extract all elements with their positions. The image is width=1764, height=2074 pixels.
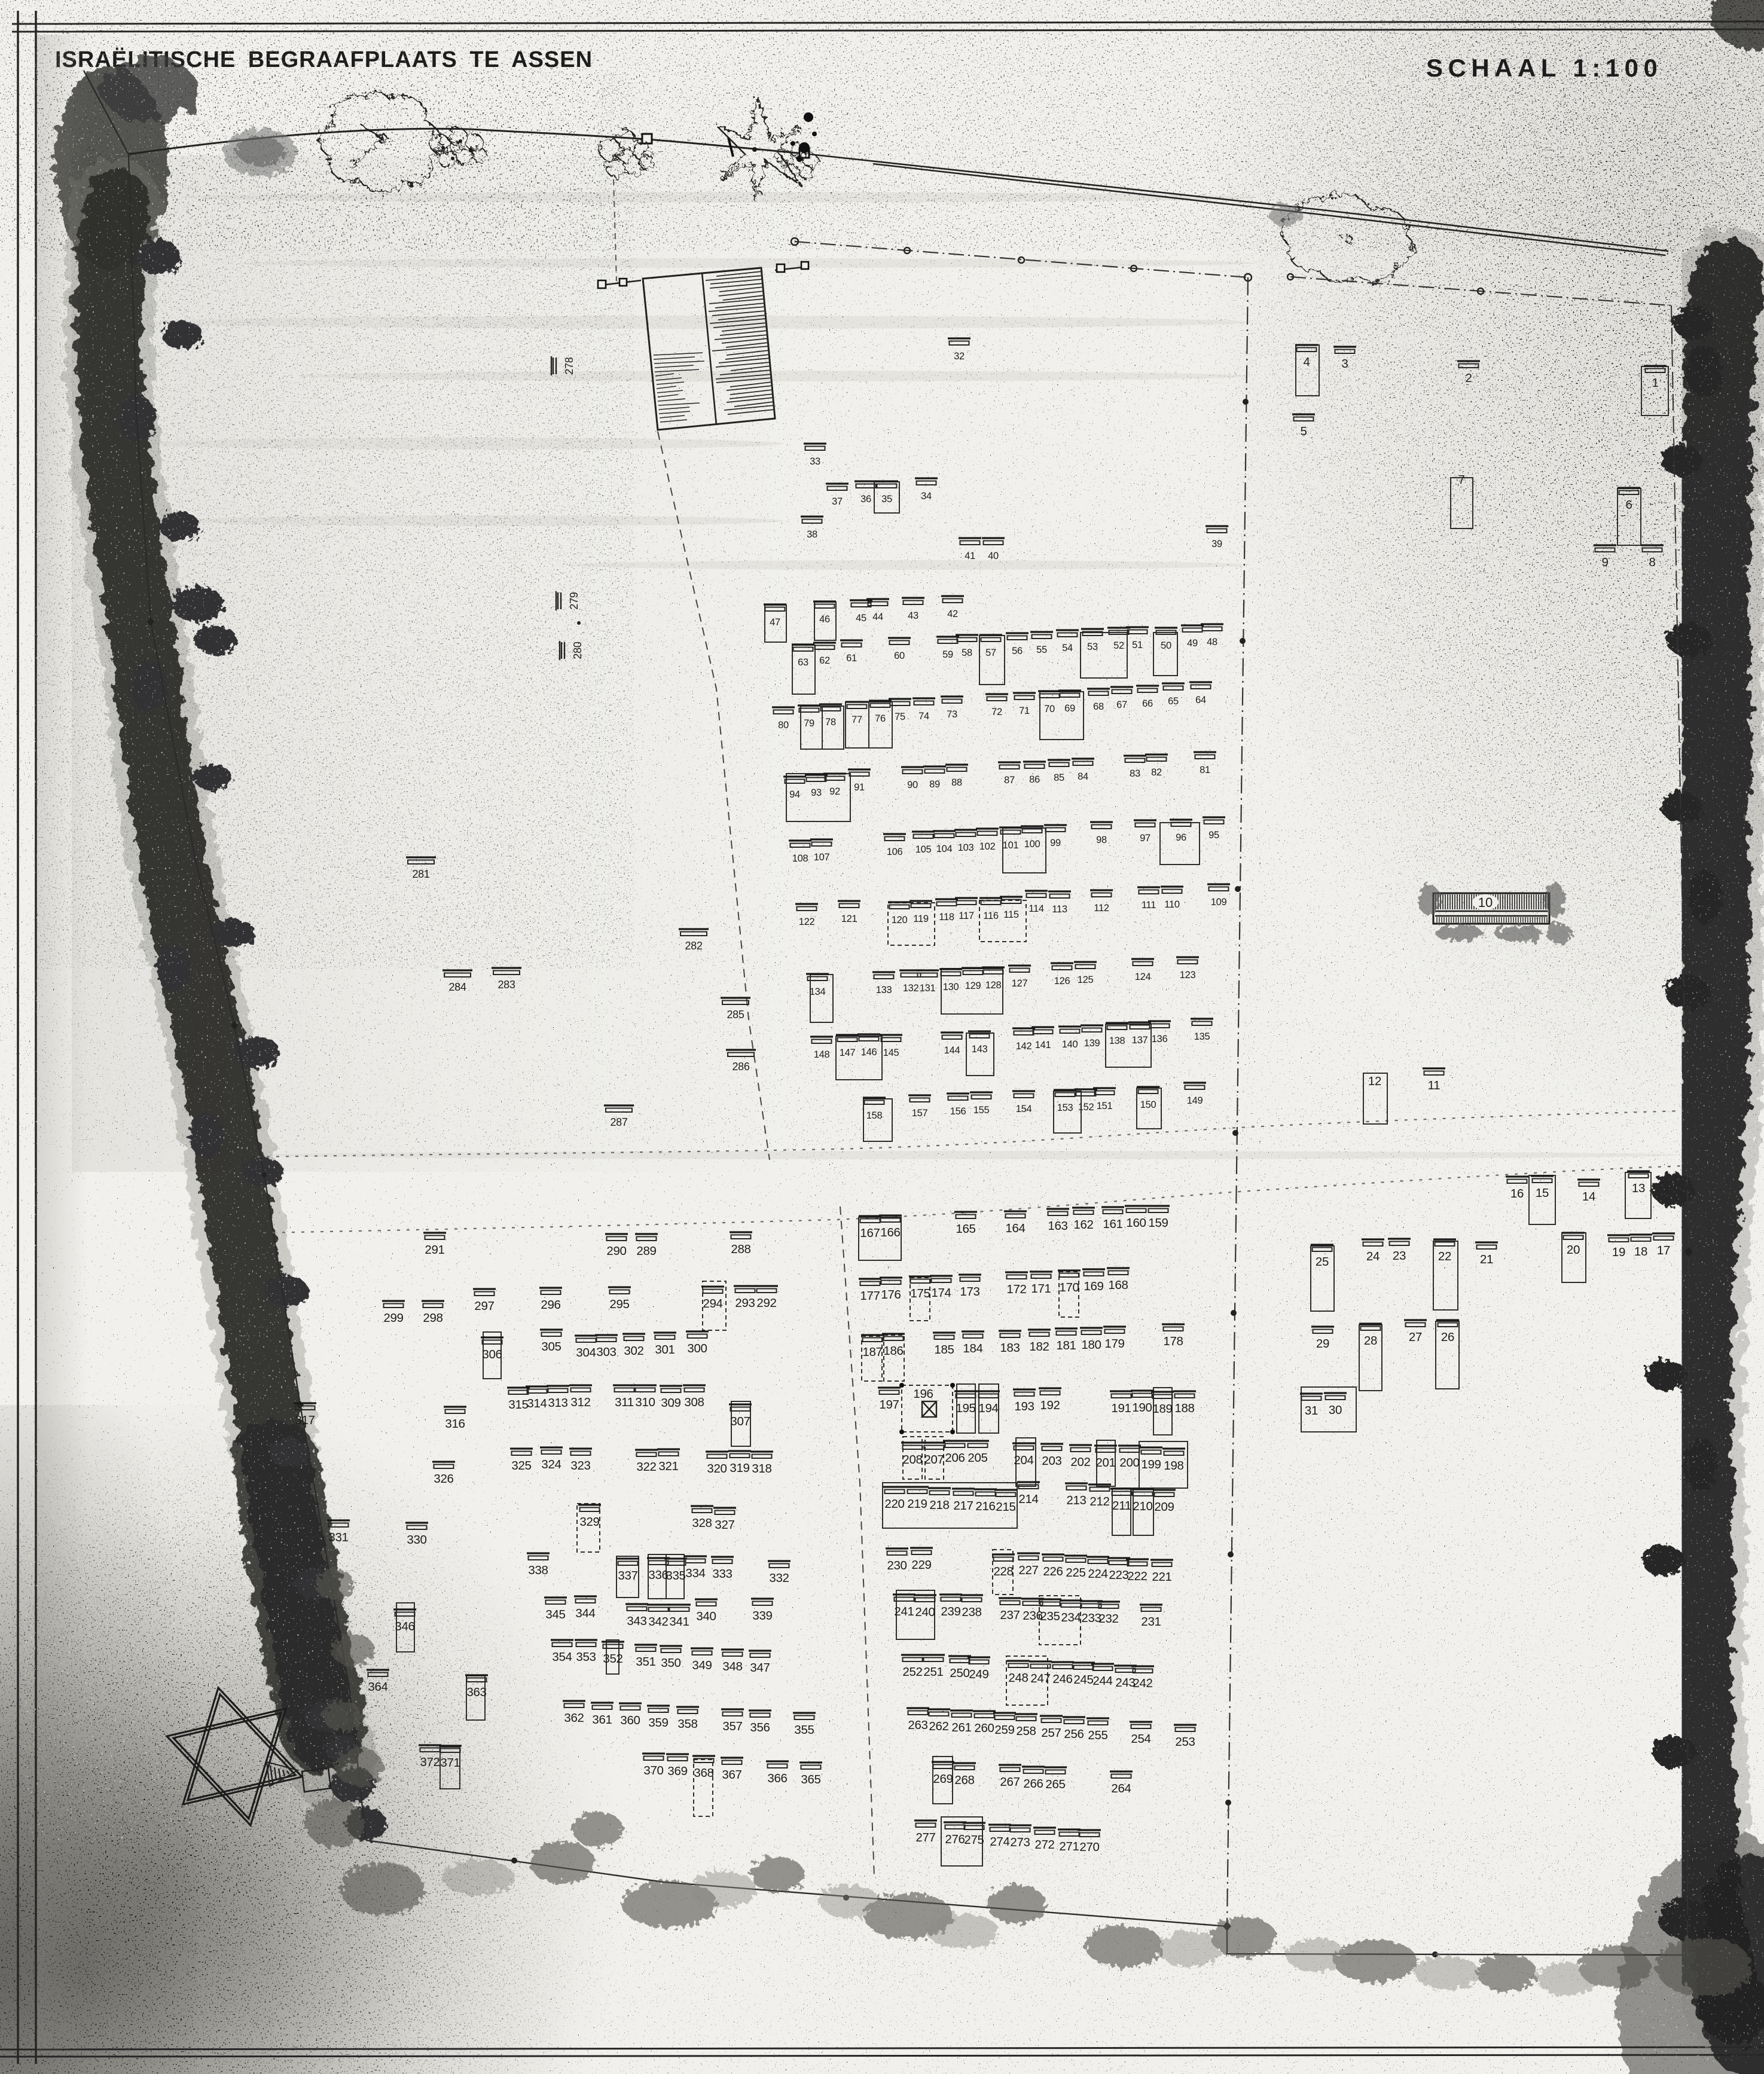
- svg-text:88: 88: [951, 777, 962, 788]
- svg-text:11: 11: [1428, 1079, 1441, 1092]
- svg-text:145: 145: [883, 1047, 899, 1058]
- svg-text:194: 194: [978, 1401, 998, 1415]
- svg-text:164: 164: [1005, 1221, 1025, 1235]
- svg-text:115: 115: [1003, 909, 1019, 920]
- svg-text:260: 260: [974, 1721, 994, 1735]
- svg-text:291: 291: [425, 1243, 444, 1257]
- svg-text:251: 251: [923, 1665, 943, 1679]
- svg-text:133: 133: [876, 985, 892, 995]
- svg-text:86: 86: [1029, 774, 1040, 785]
- svg-text:357: 357: [722, 1719, 742, 1733]
- svg-text:345: 345: [545, 1608, 565, 1621]
- svg-text:189: 189: [1152, 1402, 1172, 1416]
- svg-text:84: 84: [1078, 771, 1088, 782]
- svg-text:34: 34: [921, 491, 932, 502]
- svg-text:5: 5: [1300, 424, 1307, 438]
- svg-text:352: 352: [603, 1652, 622, 1666]
- svg-text:20: 20: [1567, 1243, 1580, 1257]
- svg-text:245: 245: [1073, 1673, 1093, 1687]
- svg-text:190: 190: [1132, 1401, 1152, 1415]
- svg-text:55: 55: [1036, 645, 1047, 655]
- svg-text:75: 75: [895, 711, 905, 722]
- svg-text:159: 159: [1148, 1216, 1168, 1230]
- svg-text:179: 179: [1104, 1337, 1124, 1351]
- svg-text:12: 12: [1368, 1074, 1381, 1088]
- svg-text:77: 77: [852, 714, 862, 725]
- svg-text:207: 207: [924, 1453, 944, 1467]
- svg-text:142: 142: [1016, 1041, 1032, 1052]
- svg-text:366: 366: [767, 1771, 787, 1785]
- svg-text:362: 362: [564, 1711, 584, 1725]
- svg-text:114: 114: [1029, 903, 1044, 914]
- svg-text:17: 17: [1657, 1244, 1670, 1257]
- svg-text:304: 304: [576, 1346, 596, 1360]
- svg-text:3: 3: [1341, 357, 1348, 371]
- svg-text:309: 309: [661, 1396, 680, 1410]
- svg-text:87: 87: [1004, 775, 1015, 786]
- svg-text:51: 51: [1132, 640, 1143, 650]
- svg-text:280: 280: [572, 642, 584, 659]
- svg-text:201: 201: [1095, 1456, 1115, 1470]
- svg-text:195: 195: [956, 1401, 975, 1415]
- svg-text:308: 308: [684, 1395, 704, 1409]
- svg-text:160: 160: [1126, 1216, 1146, 1230]
- svg-text:177: 177: [860, 1289, 880, 1303]
- svg-text:126: 126: [1054, 976, 1070, 986]
- svg-text:217: 217: [953, 1499, 973, 1513]
- svg-text:322: 322: [636, 1460, 656, 1474]
- svg-text:301: 301: [655, 1343, 675, 1357]
- svg-text:30: 30: [1329, 1403, 1342, 1417]
- svg-text:273: 273: [1010, 1835, 1030, 1849]
- svg-text:108: 108: [792, 853, 808, 864]
- svg-text:346: 346: [395, 1620, 414, 1633]
- svg-text:235: 235: [1040, 1609, 1060, 1623]
- svg-text:182: 182: [1029, 1340, 1049, 1354]
- svg-text:148: 148: [814, 1049, 830, 1060]
- svg-text:138: 138: [1109, 1036, 1125, 1046]
- svg-text:246: 246: [1052, 1672, 1072, 1686]
- svg-text:226: 226: [1043, 1565, 1063, 1578]
- svg-text:72: 72: [991, 707, 1002, 717]
- svg-text:278: 278: [563, 357, 575, 374]
- svg-text:225: 225: [1066, 1566, 1085, 1580]
- svg-text:239: 239: [941, 1605, 960, 1618]
- svg-text:96: 96: [1176, 832, 1186, 843]
- svg-text:70: 70: [1044, 704, 1055, 714]
- svg-text:250: 250: [950, 1666, 969, 1680]
- svg-text:315: 315: [508, 1398, 528, 1412]
- svg-text:27: 27: [1409, 1330, 1422, 1344]
- svg-text:299: 299: [383, 1311, 403, 1325]
- svg-text:324: 324: [541, 1458, 561, 1471]
- svg-text:173: 173: [960, 1285, 979, 1299]
- svg-text:176: 176: [881, 1288, 901, 1302]
- svg-text:327: 327: [715, 1518, 734, 1532]
- svg-text:292: 292: [756, 1296, 776, 1310]
- svg-text:31: 31: [1305, 1404, 1318, 1418]
- svg-text:249: 249: [969, 1667, 988, 1681]
- svg-text:209: 209: [1154, 1500, 1174, 1514]
- svg-text:237: 237: [1000, 1608, 1020, 1622]
- svg-text:106: 106: [887, 847, 903, 857]
- svg-text:155: 155: [973, 1105, 990, 1116]
- svg-text:339: 339: [752, 1609, 772, 1623]
- svg-text:13: 13: [1632, 1181, 1645, 1195]
- svg-text:255: 255: [1088, 1728, 1107, 1742]
- svg-text:283: 283: [498, 979, 515, 991]
- svg-text:186: 186: [883, 1344, 903, 1358]
- svg-text:199: 199: [1141, 1458, 1161, 1471]
- svg-text:252: 252: [902, 1665, 922, 1679]
- svg-text:9: 9: [1601, 555, 1608, 569]
- svg-text:264: 264: [1111, 1782, 1131, 1795]
- svg-text:276: 276: [945, 1832, 965, 1846]
- svg-text:85: 85: [1054, 772, 1064, 783]
- svg-text:355: 355: [794, 1723, 814, 1737]
- svg-text:316: 316: [445, 1417, 465, 1431]
- svg-text:116: 116: [983, 911, 999, 921]
- svg-text:370: 370: [643, 1764, 663, 1777]
- svg-text:94: 94: [789, 789, 800, 800]
- svg-text:141: 141: [1035, 1040, 1051, 1050]
- svg-text:156: 156: [950, 1106, 966, 1117]
- svg-text:363: 363: [466, 1685, 486, 1699]
- svg-text:275: 275: [964, 1833, 984, 1847]
- svg-text:348: 348: [722, 1660, 742, 1673]
- svg-text:244: 244: [1092, 1674, 1112, 1688]
- svg-text:371: 371: [440, 1756, 460, 1770]
- svg-text:28: 28: [1364, 1334, 1377, 1348]
- svg-text:146: 146: [861, 1047, 877, 1058]
- svg-text:191: 191: [1111, 1401, 1131, 1415]
- svg-text:26: 26: [1441, 1330, 1454, 1344]
- svg-text:286: 286: [732, 1061, 749, 1073]
- svg-text:180: 180: [1081, 1338, 1101, 1352]
- svg-text:41: 41: [965, 551, 975, 561]
- svg-text:254: 254: [1131, 1732, 1150, 1746]
- svg-text:364: 364: [368, 1680, 387, 1694]
- svg-text:57: 57: [985, 647, 996, 658]
- svg-text:317: 317: [295, 1413, 315, 1427]
- svg-text:325: 325: [511, 1459, 531, 1473]
- svg-text:32: 32: [954, 351, 965, 362]
- svg-text:50: 50: [1161, 640, 1171, 651]
- svg-text:44: 44: [872, 612, 883, 622]
- svg-text:360: 360: [620, 1713, 640, 1727]
- svg-text:69: 69: [1064, 703, 1075, 714]
- svg-text:341: 341: [669, 1615, 689, 1629]
- svg-text:40: 40: [988, 551, 999, 561]
- svg-text:220: 220: [884, 1497, 904, 1511]
- svg-text:150: 150: [1140, 1099, 1156, 1110]
- svg-text:302: 302: [624, 1344, 643, 1358]
- svg-text:118: 118: [939, 912, 954, 923]
- svg-text:326: 326: [434, 1472, 453, 1486]
- svg-text:163: 163: [1048, 1219, 1067, 1233]
- svg-text:227: 227: [1018, 1563, 1038, 1577]
- svg-text:193: 193: [1014, 1400, 1034, 1413]
- svg-text:134: 134: [810, 986, 826, 997]
- svg-text:337: 337: [618, 1569, 637, 1583]
- svg-text:365: 365: [801, 1773, 820, 1786]
- svg-text:166: 166: [880, 1226, 900, 1239]
- svg-text:63: 63: [798, 657, 808, 668]
- svg-text:183: 183: [1000, 1341, 1020, 1355]
- svg-text:103: 103: [958, 842, 974, 853]
- svg-text:181: 181: [1056, 1339, 1076, 1352]
- svg-text:368: 368: [694, 1766, 713, 1780]
- svg-text:76: 76: [875, 713, 886, 724]
- svg-text:99: 99: [1050, 838, 1061, 848]
- svg-text:109: 109: [1211, 897, 1227, 908]
- svg-text:19: 19: [1612, 1245, 1625, 1259]
- svg-text:151: 151: [1097, 1101, 1113, 1111]
- svg-text:303: 303: [596, 1345, 616, 1359]
- svg-text:333: 333: [712, 1567, 732, 1581]
- svg-text:49: 49: [1187, 638, 1198, 649]
- svg-text:196: 196: [913, 1387, 933, 1401]
- svg-text:169: 169: [1084, 1279, 1103, 1293]
- svg-text:152: 152: [1078, 1102, 1094, 1113]
- svg-text:353: 353: [576, 1650, 596, 1664]
- svg-text:162: 162: [1073, 1218, 1093, 1232]
- svg-text:297: 297: [474, 1299, 494, 1313]
- svg-text:269: 269: [933, 1772, 953, 1786]
- svg-text:256: 256: [1064, 1727, 1084, 1741]
- svg-text:202: 202: [1070, 1455, 1090, 1469]
- svg-text:68: 68: [1093, 701, 1104, 712]
- svg-text:102: 102: [979, 841, 996, 852]
- svg-text:349: 349: [692, 1658, 712, 1672]
- svg-text:210: 210: [1133, 1499, 1152, 1513]
- svg-text:56: 56: [1012, 646, 1023, 656]
- svg-text:369: 369: [667, 1764, 687, 1778]
- svg-text:65: 65: [1168, 696, 1179, 707]
- svg-text:198: 198: [1164, 1459, 1183, 1473]
- svg-text:211: 211: [1112, 1499, 1131, 1513]
- svg-text:175: 175: [910, 1287, 930, 1300]
- svg-text:228: 228: [993, 1565, 1013, 1578]
- svg-text:15: 15: [1536, 1186, 1549, 1200]
- svg-text:172: 172: [1006, 1282, 1026, 1296]
- svg-text:320: 320: [707, 1462, 727, 1476]
- svg-text:285: 285: [727, 1009, 744, 1021]
- svg-text:178: 178: [1163, 1334, 1183, 1348]
- svg-text:78: 78: [825, 717, 836, 728]
- svg-text:289: 289: [636, 1244, 656, 1258]
- svg-text:340: 340: [696, 1609, 716, 1623]
- svg-text:241: 241: [894, 1605, 914, 1618]
- svg-text:287: 287: [610, 1116, 627, 1128]
- svg-text:33: 33: [810, 456, 820, 467]
- svg-text:277: 277: [915, 1831, 935, 1844]
- svg-text:105: 105: [915, 844, 932, 855]
- svg-text:261: 261: [951, 1721, 971, 1734]
- svg-text:165: 165: [956, 1222, 975, 1236]
- svg-text:240: 240: [915, 1605, 935, 1619]
- svg-text:101: 101: [1003, 840, 1019, 851]
- svg-text:205: 205: [968, 1451, 987, 1465]
- svg-text:71: 71: [1019, 705, 1030, 716]
- svg-text:290: 290: [606, 1244, 626, 1258]
- svg-text:147: 147: [840, 1047, 856, 1058]
- svg-text:95: 95: [1208, 830, 1219, 841]
- svg-text:242: 242: [1133, 1676, 1152, 1690]
- svg-text:253: 253: [1175, 1735, 1195, 1749]
- svg-text:119: 119: [913, 914, 929, 924]
- svg-text:2: 2: [1465, 371, 1472, 385]
- svg-text:268: 268: [954, 1773, 974, 1787]
- svg-text:328: 328: [692, 1516, 712, 1530]
- svg-text:267: 267: [1000, 1775, 1020, 1789]
- svg-text:214: 214: [1018, 1492, 1038, 1506]
- svg-text:104: 104: [936, 844, 953, 854]
- svg-text:192: 192: [1040, 1398, 1060, 1412]
- svg-text:161: 161: [1103, 1217, 1122, 1231]
- svg-text:187: 187: [862, 1345, 882, 1359]
- svg-text:197: 197: [879, 1398, 899, 1412]
- svg-text:359: 359: [648, 1716, 668, 1730]
- svg-text:367: 367: [722, 1768, 741, 1782]
- svg-text:263: 263: [908, 1718, 927, 1732]
- svg-text:153: 153: [1057, 1102, 1073, 1113]
- svg-text:232: 232: [1098, 1612, 1118, 1626]
- svg-text:293: 293: [735, 1296, 755, 1310]
- svg-text:296: 296: [541, 1298, 560, 1312]
- svg-text:149: 149: [1187, 1095, 1203, 1106]
- svg-text:8: 8: [1649, 555, 1655, 569]
- svg-text:219: 219: [907, 1497, 927, 1511]
- svg-text:80: 80: [778, 720, 789, 731]
- svg-text:35: 35: [881, 494, 892, 505]
- svg-text:321: 321: [658, 1459, 678, 1473]
- svg-text:60: 60: [894, 650, 905, 661]
- svg-text:313: 313: [548, 1396, 567, 1410]
- svg-text:259: 259: [994, 1723, 1014, 1737]
- svg-text:216: 216: [975, 1499, 995, 1513]
- svg-text:38: 38: [807, 529, 817, 540]
- svg-text:361: 361: [592, 1713, 612, 1727]
- svg-text:14: 14: [1582, 1190, 1595, 1204]
- svg-text:140: 140: [1062, 1039, 1078, 1050]
- svg-text:318: 318: [752, 1462, 771, 1476]
- svg-text:127: 127: [1012, 978, 1028, 989]
- svg-text:213: 213: [1066, 1493, 1086, 1507]
- svg-text:307: 307: [730, 1415, 750, 1428]
- svg-text:154: 154: [1016, 1104, 1032, 1114]
- svg-text:131: 131: [920, 983, 936, 994]
- svg-text:90: 90: [907, 780, 918, 790]
- svg-text:82: 82: [1151, 767, 1162, 778]
- svg-text:294: 294: [703, 1297, 722, 1311]
- svg-text:174: 174: [931, 1286, 951, 1300]
- svg-text:319: 319: [730, 1461, 749, 1475]
- svg-text:306: 306: [482, 1348, 502, 1361]
- svg-text:354: 354: [552, 1650, 572, 1664]
- svg-text:125: 125: [1078, 975, 1094, 985]
- svg-text:281: 281: [412, 868, 429, 880]
- svg-text:372: 372: [420, 1755, 440, 1769]
- svg-text:53: 53: [1087, 642, 1098, 652]
- svg-text:168: 168: [1108, 1278, 1128, 1292]
- svg-text:58: 58: [962, 647, 972, 658]
- svg-text:23: 23: [1393, 1249, 1406, 1263]
- svg-text:203: 203: [1042, 1454, 1061, 1468]
- svg-text:124: 124: [1135, 972, 1151, 982]
- svg-text:48: 48: [1207, 637, 1217, 647]
- svg-text:4: 4: [1303, 355, 1310, 369]
- svg-text:117: 117: [959, 911, 974, 921]
- svg-text:212: 212: [1089, 1495, 1109, 1508]
- svg-text:282: 282: [685, 940, 702, 952]
- svg-text:137: 137: [1132, 1035, 1148, 1046]
- svg-text:305: 305: [541, 1340, 561, 1354]
- svg-text:128: 128: [985, 980, 1002, 991]
- svg-text:330: 330: [407, 1533, 426, 1547]
- svg-text:36: 36: [860, 494, 871, 505]
- svg-text:272: 272: [1034, 1838, 1054, 1852]
- svg-text:46: 46: [819, 614, 830, 625]
- svg-text:7: 7: [1458, 473, 1464, 487]
- svg-text:16: 16: [1510, 1187, 1524, 1201]
- svg-text:66: 66: [1142, 698, 1153, 709]
- svg-text:230: 230: [887, 1559, 907, 1572]
- svg-text:111: 111: [1142, 900, 1156, 911]
- svg-text:329: 329: [579, 1515, 599, 1529]
- svg-text:157: 157: [912, 1108, 928, 1119]
- svg-text:42: 42: [947, 609, 958, 619]
- svg-text:314: 314: [527, 1397, 547, 1410]
- svg-text:18: 18: [1634, 1245, 1647, 1259]
- svg-text:343: 343: [627, 1614, 646, 1628]
- svg-text:338: 338: [528, 1563, 548, 1577]
- svg-text:143: 143: [972, 1044, 988, 1055]
- svg-text:247: 247: [1030, 1672, 1050, 1685]
- svg-text:144: 144: [944, 1045, 960, 1056]
- svg-text:270: 270: [1079, 1840, 1099, 1854]
- svg-text:132: 132: [903, 983, 919, 994]
- svg-text:121: 121: [841, 914, 857, 924]
- svg-text:113: 113: [1052, 904, 1067, 915]
- svg-text:29: 29: [1316, 1337, 1329, 1351]
- svg-text:21: 21: [1480, 1253, 1493, 1266]
- svg-text:347: 347: [750, 1661, 770, 1675]
- svg-text:284: 284: [448, 981, 466, 993]
- svg-text:89: 89: [929, 779, 940, 790]
- svg-text:200: 200: [1119, 1456, 1139, 1470]
- svg-text:274: 274: [990, 1835, 1009, 1849]
- svg-text:223: 223: [1109, 1568, 1128, 1582]
- svg-text:279: 279: [568, 592, 580, 609]
- svg-text:24: 24: [1366, 1250, 1380, 1263]
- svg-text:25: 25: [1316, 1255, 1329, 1269]
- svg-text:100: 100: [1024, 839, 1040, 850]
- svg-text:204: 204: [1014, 1453, 1033, 1467]
- svg-text:129: 129: [965, 981, 981, 991]
- svg-text:358: 358: [677, 1717, 697, 1731]
- svg-text:73: 73: [947, 709, 957, 720]
- svg-text:83: 83: [1130, 768, 1140, 779]
- svg-text:231: 231: [1141, 1615, 1161, 1629]
- svg-text:265: 265: [1045, 1777, 1065, 1791]
- svg-text:208: 208: [902, 1453, 922, 1467]
- svg-text:67: 67: [1116, 700, 1127, 710]
- svg-text:10: 10: [1478, 895, 1493, 910]
- svg-text:185: 185: [934, 1343, 954, 1357]
- svg-text:97: 97: [1140, 833, 1150, 844]
- svg-text:266: 266: [1023, 1777, 1043, 1791]
